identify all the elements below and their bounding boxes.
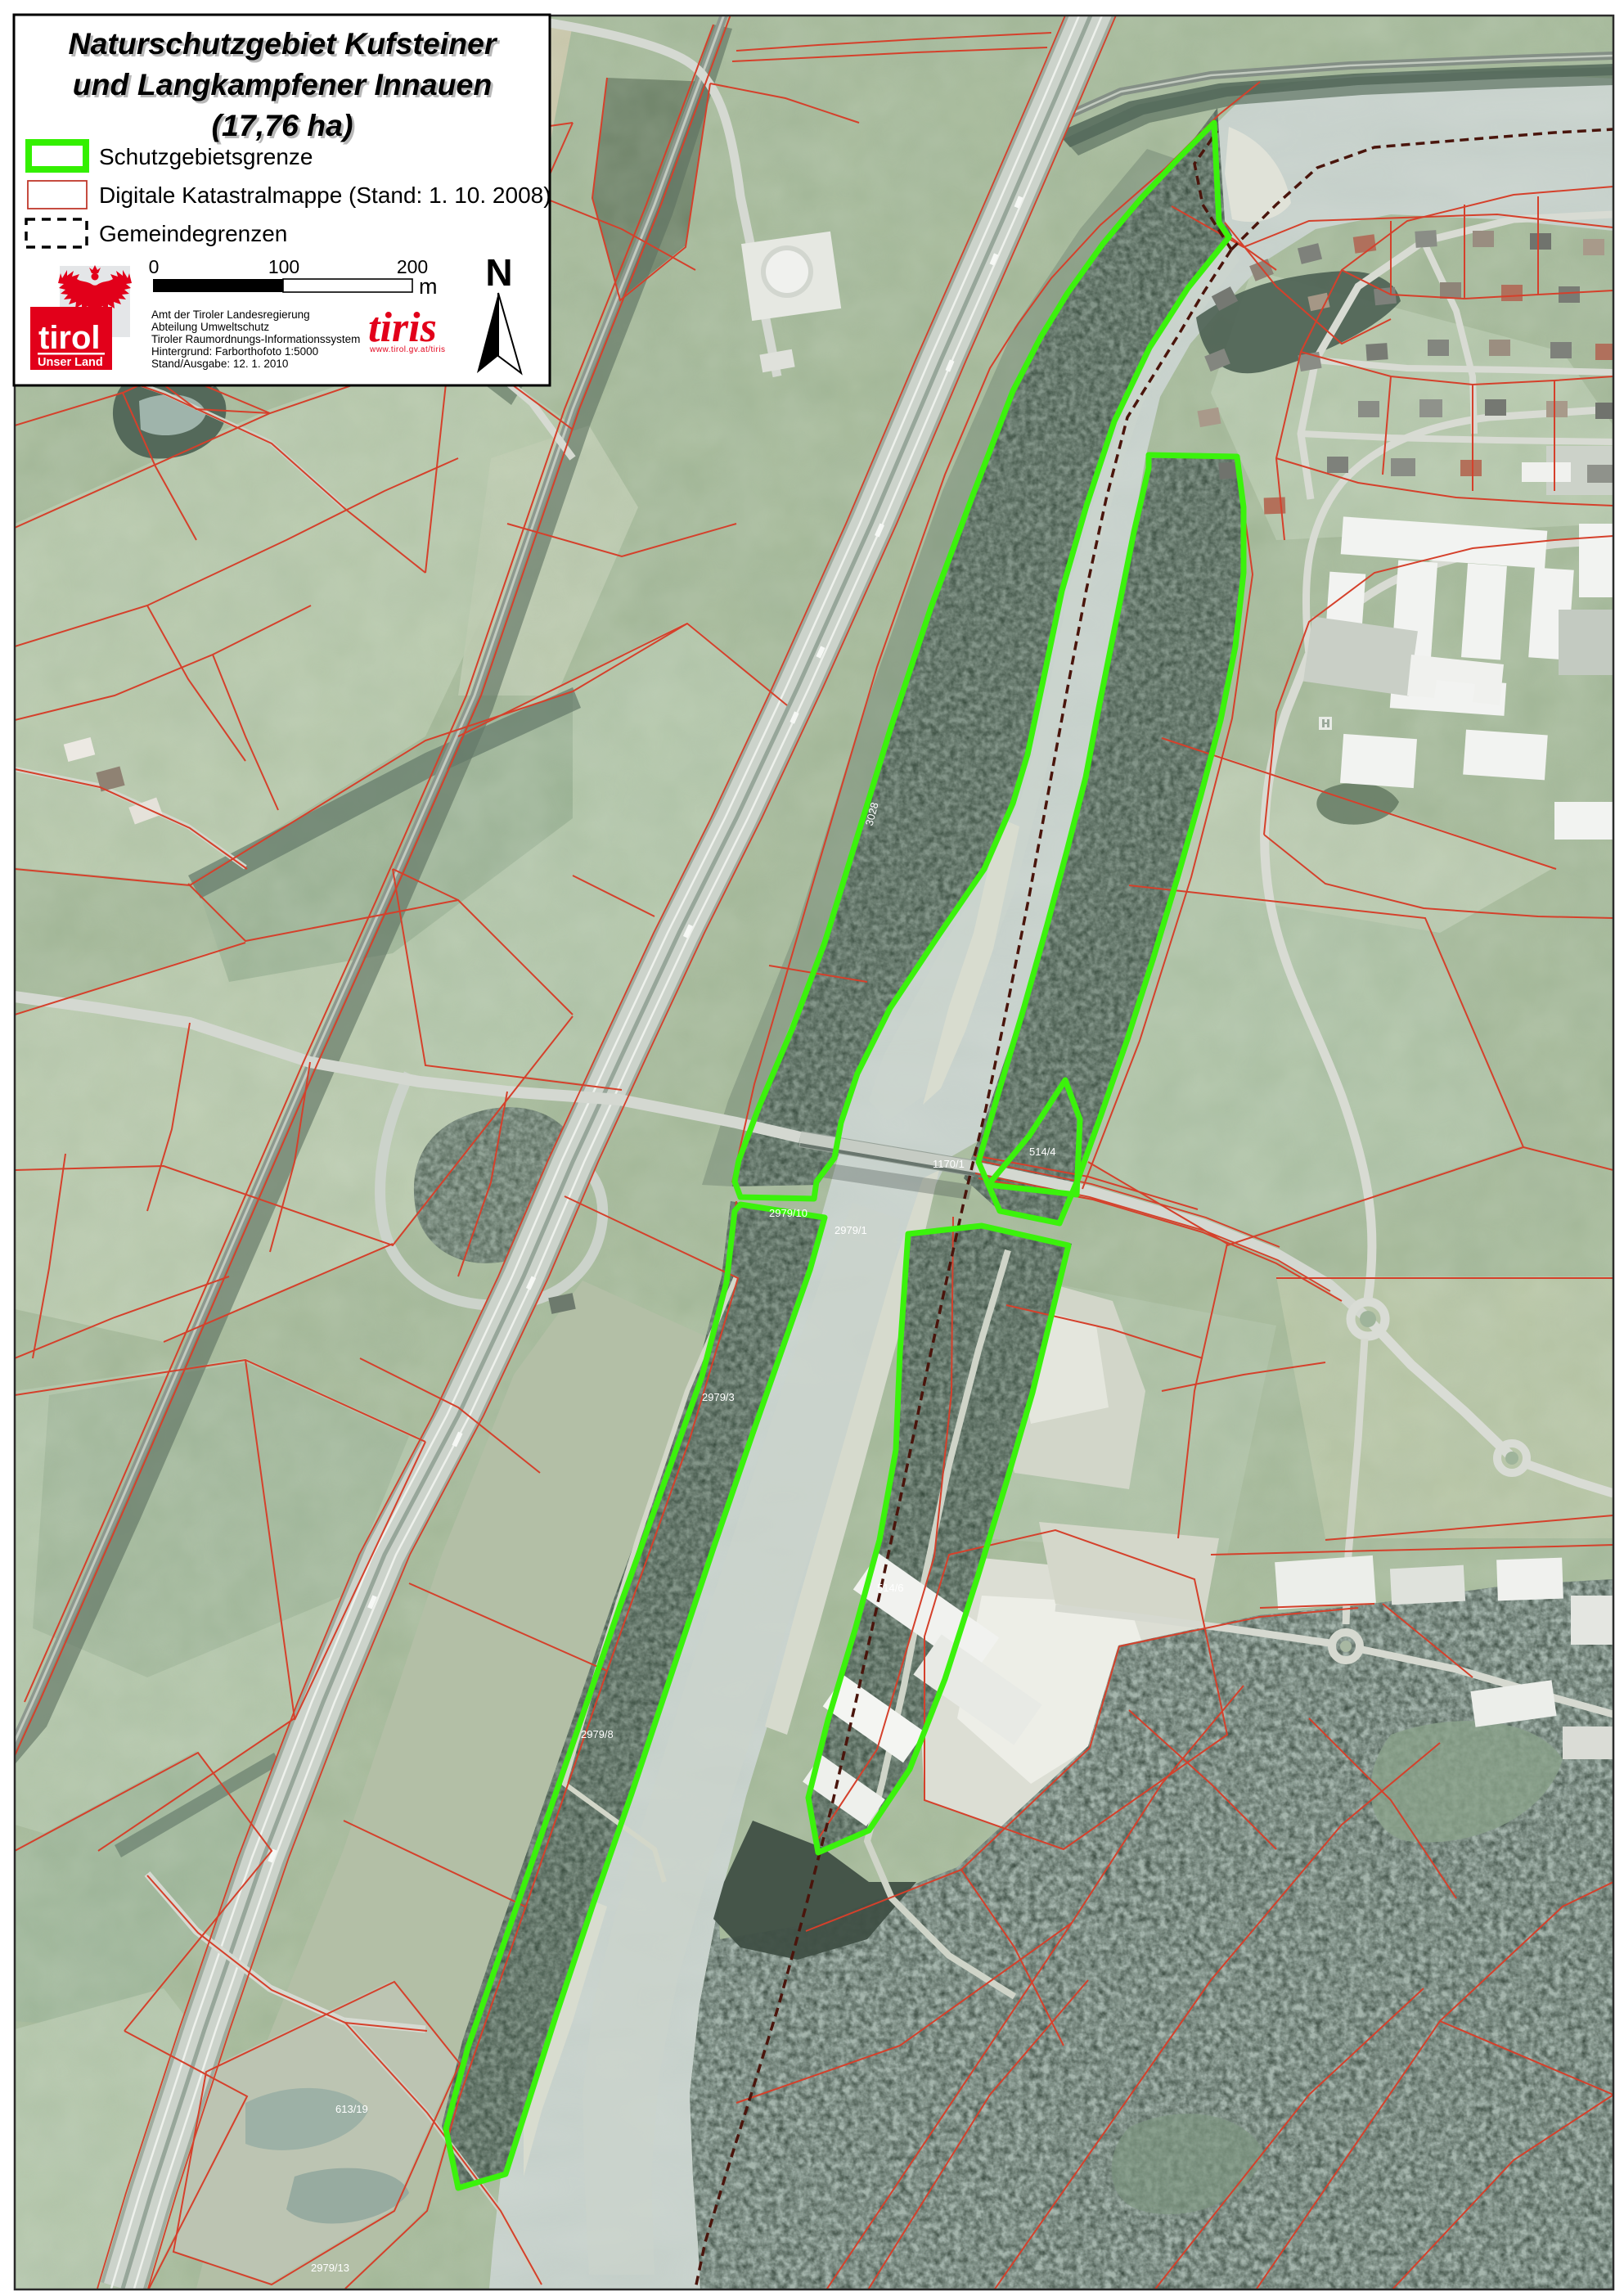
svg-text:613/19: 613/19 xyxy=(335,2103,368,2115)
svg-text:Hintergrund: Farborthofoto 1:5: Hintergrund: Farborthofoto 1:5000 xyxy=(151,345,318,358)
svg-text:Stand/Ausgabe: 12. 1. 2010: Stand/Ausgabe: 12. 1. 2010 xyxy=(151,358,288,370)
svg-text:www.tirol.gv.at/tiris: www.tirol.gv.at/tiris xyxy=(369,345,446,354)
svg-text:tirol: tirol xyxy=(38,320,101,356)
svg-text:2979/13: 2979/13 xyxy=(311,2262,349,2274)
svg-text:Tiroler Raumordnungs-Informati: Tiroler Raumordnungs-Informationssystem xyxy=(151,333,360,345)
svg-text:tiris: tiris xyxy=(368,304,437,351)
svg-text:und Langkampfener Innauen: und Langkampfener Innauen xyxy=(73,67,493,101)
svg-text:m: m xyxy=(419,274,438,299)
svg-text:Gemeindegrenzen: Gemeindegrenzen xyxy=(99,221,287,246)
svg-text:Schutzgebietsgrenze: Schutzgebietsgrenze xyxy=(99,144,313,169)
svg-text:Amt der Tiroler Landesregierun: Amt der Tiroler Landesregierung xyxy=(151,308,310,321)
svg-text:0: 0 xyxy=(149,256,160,277)
svg-text:Digitale Katastralmappe (Stand: Digitale Katastralmappe (Stand: 1. 10. 2… xyxy=(99,182,551,208)
svg-text:2979/8: 2979/8 xyxy=(581,1728,614,1740)
svg-text:(17,76 ha): (17,76 ha) xyxy=(212,108,353,142)
svg-text:100: 100 xyxy=(268,256,299,277)
svg-text:514/6: 514/6 xyxy=(877,1582,904,1594)
svg-text:2979/10: 2979/10 xyxy=(769,1207,808,1219)
svg-text:N: N xyxy=(485,251,512,294)
svg-text:Naturschutzgebiet Kufsteiner: Naturschutzgebiet Kufsteiner xyxy=(69,26,498,61)
svg-text:Unser Land: Unser Land xyxy=(38,356,103,369)
svg-text:Abteilung Umweltschutz: Abteilung Umweltschutz xyxy=(151,321,269,333)
svg-text:1170/1: 1170/1 xyxy=(933,1158,965,1170)
svg-text:514/4: 514/4 xyxy=(1029,1146,1056,1158)
svg-text:2979/3: 2979/3 xyxy=(702,1391,735,1403)
svg-text:2979/1: 2979/1 xyxy=(834,1224,867,1236)
